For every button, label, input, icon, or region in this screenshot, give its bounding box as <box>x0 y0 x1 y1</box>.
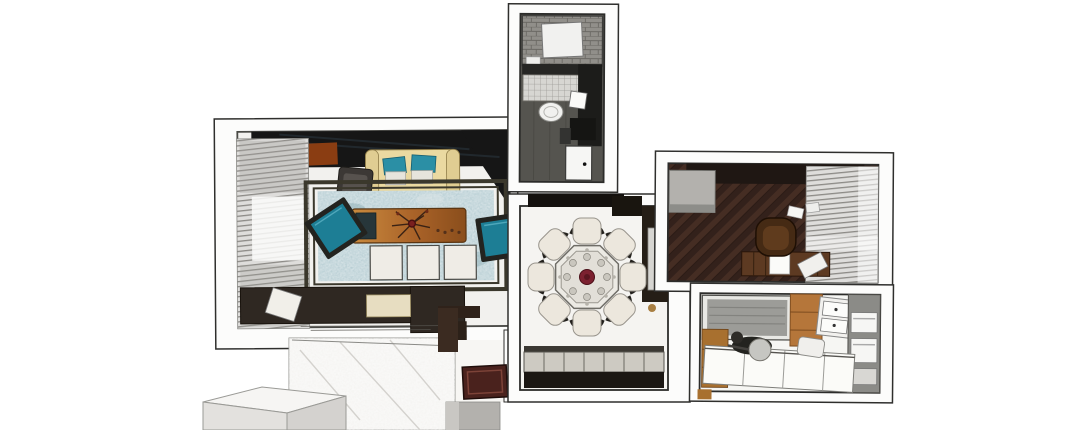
ceiling-beam <box>528 194 624 207</box>
shower <box>522 16 602 66</box>
octagonal-dining-table <box>556 246 619 309</box>
gray-plinth-block <box>446 402 500 430</box>
dining-set <box>528 218 646 336</box>
kettle <box>797 336 825 358</box>
floor-plan-canvas <box>0 0 1080 430</box>
teal-pillow <box>411 155 436 172</box>
bath-cabinet <box>570 118 596 140</box>
corner-cabinet <box>612 196 642 216</box>
frying-pan <box>749 339 771 361</box>
shower-tray <box>542 22 584 58</box>
bath-bin <box>560 128 571 144</box>
white-ottomans <box>370 245 476 280</box>
desk-chair <box>756 218 796 256</box>
toilet <box>539 102 563 121</box>
wood-sill <box>697 389 711 399</box>
balcony-threshold <box>524 346 664 352</box>
decor-bowl <box>648 304 656 312</box>
kitchen <box>689 283 893 403</box>
red-doormat <box>462 365 508 399</box>
oven <box>851 313 877 333</box>
tiled-balcony-strip <box>524 352 664 372</box>
dark-bench <box>524 372 664 388</box>
cream-seat-cushion <box>366 295 410 317</box>
white-wall-box <box>203 387 346 430</box>
gray-cabinet <box>669 170 715 212</box>
wood-coffee-table <box>352 208 466 243</box>
study <box>655 151 894 293</box>
bathroom-door <box>566 146 592 180</box>
floor-plan-render <box>0 0 1080 430</box>
living-room <box>214 117 529 353</box>
bathroom <box>508 4 619 193</box>
pot <box>731 331 743 343</box>
sink <box>569 91 587 109</box>
paper-sheet <box>770 254 790 274</box>
